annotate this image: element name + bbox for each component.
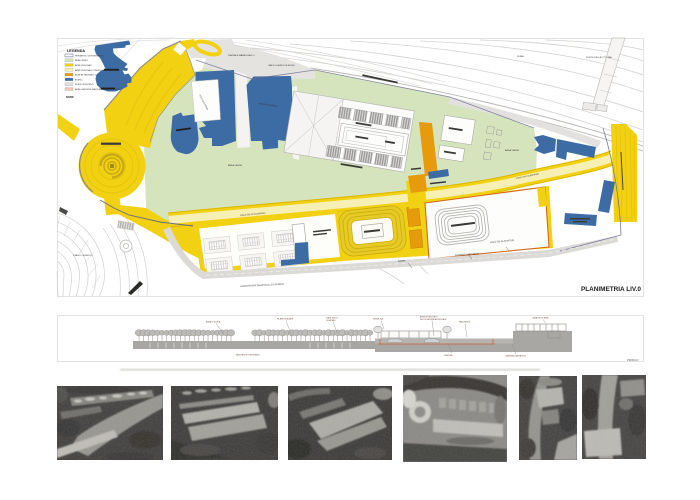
svg-text:PENSILINA: PENSILINA bbox=[373, 318, 384, 321]
svg-text:LEGENDA: LEGENDA bbox=[67, 49, 85, 53]
svg-text:AREE PEDONALI CON ACCESSO CARR: AREE PEDONALI CON ACCESSO CARRABILE bbox=[75, 69, 121, 72]
svg-text:CAMPATA CARPIAGGIO: CAMPATA CARPIAGGIO bbox=[505, 355, 527, 358]
svg-text:ASSE ATTREZZATO L.1: ASSE ATTREZZATO L.1 bbox=[75, 74, 99, 77]
svg-text:AREE PEDONALI: AREE PEDONALI bbox=[75, 64, 92, 67]
svg-text:PIAZZALE MARESCIALLO: PIAZZALE MARESCIALLO bbox=[228, 54, 255, 57]
svg-text:OLIMPIADI: OLIMPIADI bbox=[326, 319, 336, 322]
svg-text:LARGO LAURO DE BOSIS: LARGO LAURO DE BOSIS bbox=[268, 64, 295, 67]
svg-text:AREA DI SOSTA: AREA DI SOSTA bbox=[206, 321, 221, 324]
svg-text:PLANIMETRIA LIV.0: PLANIMETRIA LIV.0 bbox=[581, 286, 641, 293]
svg-text:AREE VERDI: AREE VERDI bbox=[75, 59, 88, 62]
svg-text:AREE LASCIATE INALTERATE DAL P: AREE LASCIATE INALTERATE DAL PROGETTO bbox=[75, 88, 121, 91]
svg-text:PROFILO: PROFILO bbox=[627, 358, 638, 362]
svg-text:PARCHEGGI: PARCHEGGI bbox=[459, 321, 471, 324]
svg-text:FILARE DI ALBERI: FILARE DI ALBERI bbox=[277, 318, 294, 321]
svg-text:EDIFICI ESISTENTI: EDIFICI ESISTENTI bbox=[75, 84, 94, 86]
svg-text:NORD: NORD bbox=[66, 95, 74, 99]
svg-text:RAMPA: RAMPA bbox=[398, 259, 406, 263]
svg-text:AREA VERDE: AREA VERDE bbox=[228, 164, 243, 167]
svg-text:NUOVO ARGINE ARTIFICIALE: NUOVO ARGINE ARTIFICIALE bbox=[420, 318, 447, 321]
svg-text:PERIMETRO DI INTERVENTO: PERIMETRO DI INTERVENTO bbox=[75, 55, 104, 57]
svg-text:CASCINA: CASCINA bbox=[444, 354, 453, 357]
svg-text:EDIFICI: EDIFICI bbox=[75, 79, 83, 81]
svg-text:FIUME: FIUME bbox=[517, 56, 524, 58]
svg-text:STADIO OLIMPICO: STADIO OLIMPICO bbox=[73, 254, 93, 257]
svg-text:PONTE DELLA VITTORIA: PONTE DELLA VITTORIA bbox=[586, 56, 612, 59]
svg-text:CASA DELLE ARMI: CASA DELLE ARMI bbox=[532, 317, 549, 320]
svg-text:PARCHEGGIO INTERRATO: PARCHEGGIO INTERRATO bbox=[236, 354, 260, 357]
svg-text:AREA VERDE: AREA VERDE bbox=[505, 149, 520, 152]
